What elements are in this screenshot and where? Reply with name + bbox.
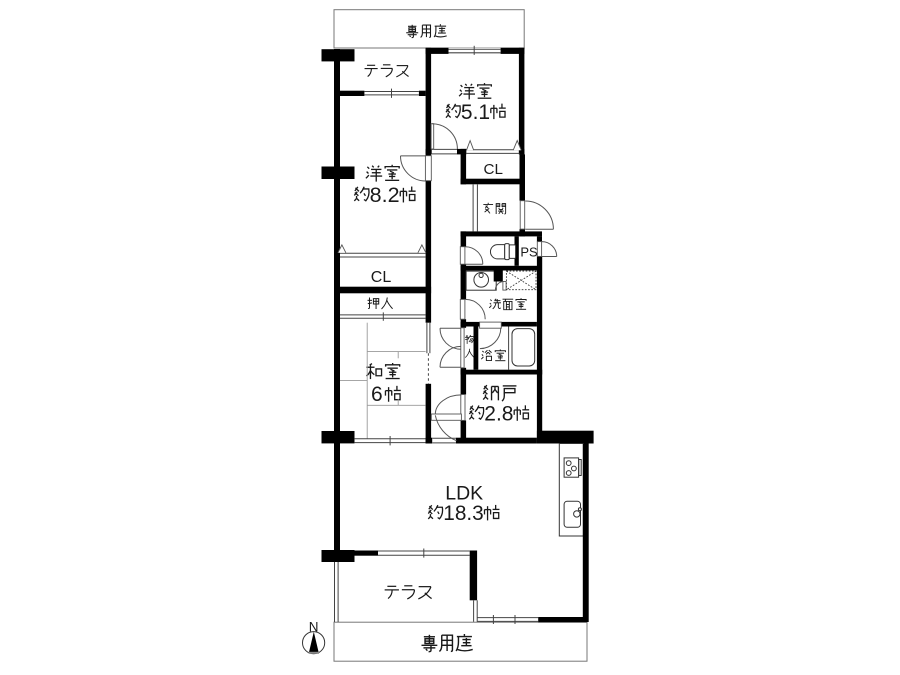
svg-text:18.3: 18.3 — [443, 502, 483, 525]
svg-text:LDK: LDK — [445, 482, 483, 504]
svg-text:5.1: 5.1 — [461, 101, 490, 124]
svg-text:8.2: 8.2 — [370, 183, 400, 207]
svg-text:2.8: 2.8 — [484, 403, 513, 426]
svg-text:CL: CL — [483, 161, 502, 178]
svg-text:CL: CL — [371, 269, 392, 286]
svg-text:PS: PS — [520, 244, 538, 259]
svg-text:6: 6 — [371, 383, 383, 406]
